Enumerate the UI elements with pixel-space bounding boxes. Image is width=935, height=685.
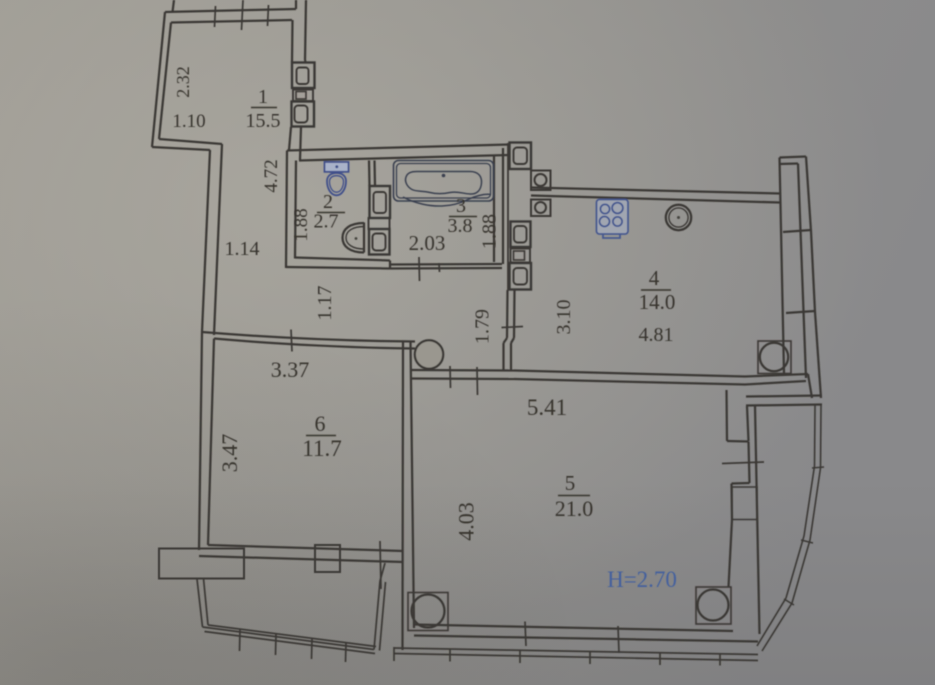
svg-text:4.72: 4.72 [261,159,282,192]
svg-text:3.37: 3.37 [271,357,310,382]
svg-text:1.10: 1.10 [172,111,205,132]
svg-text:15.5: 15.5 [246,110,281,132]
svg-text:H=2.70: H=2.70 [607,567,677,592]
svg-text:5: 5 [565,471,576,495]
svg-text:3.47: 3.47 [217,434,242,473]
svg-text:21.0: 21.0 [555,496,594,521]
svg-text:1.88: 1.88 [291,208,312,241]
svg-text:2.32: 2.32 [173,66,193,98]
svg-text:1: 1 [258,86,268,108]
svg-text:11.7: 11.7 [302,436,341,461]
svg-text:2.7: 2.7 [314,211,339,233]
svg-text:3.8: 3.8 [448,215,473,237]
svg-text:4: 4 [649,266,660,290]
svg-text:5.41: 5.41 [527,395,567,420]
svg-text:6: 6 [315,411,326,436]
svg-text:3: 3 [456,195,466,217]
svg-text:14.0: 14.0 [639,290,676,314]
svg-text:1.79: 1.79 [472,309,494,344]
svg-text:1.17: 1.17 [314,286,336,321]
svg-text:1.88: 1.88 [479,214,501,249]
svg-text:4.03: 4.03 [454,502,479,541]
svg-text:2.03: 2.03 [409,231,446,255]
svg-text:1.14: 1.14 [225,238,260,260]
svg-text:3.10: 3.10 [553,300,575,335]
svg-text:4.81: 4.81 [639,324,674,346]
